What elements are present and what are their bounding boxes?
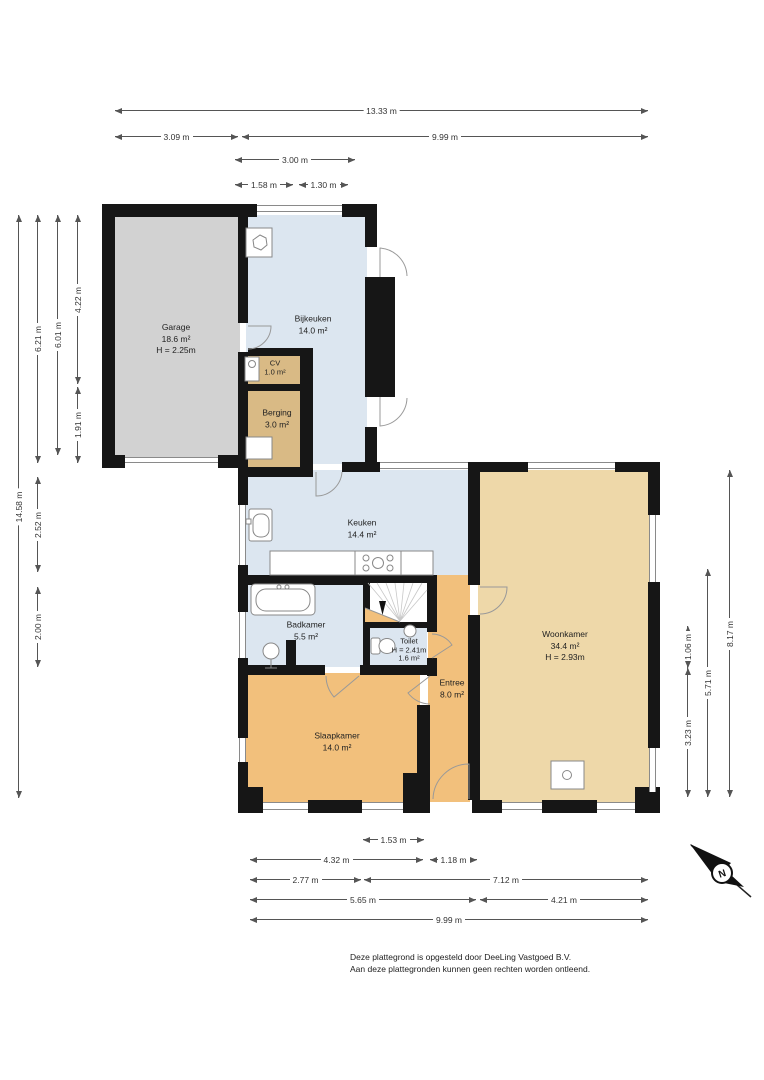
wall (300, 348, 313, 477)
room-label-entree: Entree8.0 m² (439, 678, 464, 701)
dim-left-seg2: 4.22 m (77, 215, 78, 384)
wall (102, 204, 257, 217)
wall (238, 217, 248, 323)
dim-bottom-seg7: 4.21 m (480, 899, 648, 900)
wall (102, 455, 125, 468)
window (125, 457, 218, 463)
room-label-slaapkamer: Slaapkamer14.0 m² (314, 731, 359, 754)
dim-right-seg2: 3.23 m (687, 668, 688, 797)
dim-bottom-total: 9.99 m (250, 919, 648, 920)
window (502, 802, 542, 810)
compass-icon: N (690, 844, 751, 897)
wall (238, 565, 248, 612)
dim-left-total: 14.58 m (18, 215, 19, 798)
wall (342, 204, 377, 217)
wall (377, 277, 395, 397)
dim-bottom-seg4: 2.77 m (250, 879, 361, 880)
room-label-berging: Berging3.0 m² (262, 408, 291, 431)
dim-bottom-seg3: 1.18 m (430, 859, 477, 860)
room-label-garage: Garage18.6 m²H = 2.25m (156, 322, 195, 357)
dim-top-total: 13.33 m (115, 110, 648, 111)
wall (248, 348, 305, 356)
wall (365, 217, 377, 247)
window (528, 462, 615, 469)
dim-right-total: 8.17 m (729, 470, 730, 797)
dim-top-bijkeuken: 3.00 m (235, 159, 355, 160)
footer-line2: Aan deze plattegronden kunnen geen recht… (350, 963, 590, 975)
wall (248, 575, 363, 585)
wall (472, 800, 502, 813)
footer-line1: Deze plattegrond is opgesteld door DeeLi… (350, 951, 590, 963)
window (263, 802, 308, 810)
wall (238, 352, 248, 477)
dim-bottom-seg5: 7.12 m (364, 879, 648, 880)
wall (286, 640, 296, 667)
wall (248, 384, 300, 391)
dim-right-woonkamer: 5.71 m (707, 569, 708, 797)
wall (648, 582, 660, 748)
stairs (365, 583, 427, 622)
window (380, 462, 468, 469)
wall (102, 204, 115, 468)
dim-top-seg1: 1.58 m (235, 184, 293, 185)
wall (238, 762, 248, 800)
window (597, 802, 635, 810)
wall (363, 575, 437, 583)
wall (308, 800, 362, 813)
dim-left-seg3: 1.91 m (77, 387, 78, 463)
dim-bottom-seg6: 5.65 m (250, 899, 476, 900)
footer-disclaimer: Deze plattegrond is opgesteld door DeeLi… (350, 951, 590, 975)
wall (403, 773, 430, 813)
dim-left-garage: 6.21 m (37, 215, 38, 463)
wall (542, 800, 597, 813)
dim-top-seg2: 1.30 m (299, 184, 348, 185)
window (239, 505, 246, 565)
wall (427, 658, 437, 676)
wall (468, 472, 480, 585)
room-label-badkamer: Badkamer5.5 m² (287, 620, 326, 643)
dim-right-seg1: 1.06 m (687, 626, 688, 668)
stairs-direction-arrow (379, 601, 386, 615)
dim-top-main: 9.99 m (242, 136, 648, 137)
wall (238, 477, 248, 505)
dim-left-keuken: 2.52 m (37, 477, 38, 572)
wall (342, 462, 380, 472)
dim-left-badkamer: 2.00 m (37, 587, 38, 667)
window (362, 802, 403, 810)
room-label-keuken: Keuken14.4 m² (348, 518, 377, 541)
room-label-cv: CV1.0 m² (264, 360, 285, 377)
wall (363, 622, 435, 628)
wall (468, 615, 480, 800)
room-label-toilet: ToiletH = 2.41m1.6 m² (392, 637, 427, 663)
window (239, 738, 246, 762)
wall (360, 665, 427, 675)
window (649, 515, 656, 582)
wall (238, 467, 313, 477)
wall (238, 665, 325, 675)
wall (365, 277, 377, 397)
room-label-woonkamer: Woonkamer34.4 m²H = 2.93m (542, 629, 588, 664)
wall (468, 462, 528, 472)
room-label-bijkeuken: Bijkeuken14.0 m² (295, 314, 332, 337)
dim-left-seg1: 6.01 m (57, 215, 58, 455)
compass-north-label: N (717, 868, 727, 881)
door-exterior-bijkeuken-bottom (380, 397, 407, 426)
wall (417, 705, 430, 773)
window (649, 748, 656, 792)
window (257, 205, 342, 212)
wall (635, 787, 660, 813)
dim-top-garage: 3.09 m (115, 136, 238, 137)
dim-bottom-seg1: 1.53 m (363, 839, 424, 840)
door-exterior-bijkeuken-top (380, 248, 407, 277)
dim-bottom-seg2: 4.32 m (250, 859, 423, 860)
floorplan: N Garage18.6 m²H = 2.25m Bijkeuken14.0 m… (0, 0, 764, 1080)
wall (648, 462, 660, 515)
window (239, 612, 246, 658)
